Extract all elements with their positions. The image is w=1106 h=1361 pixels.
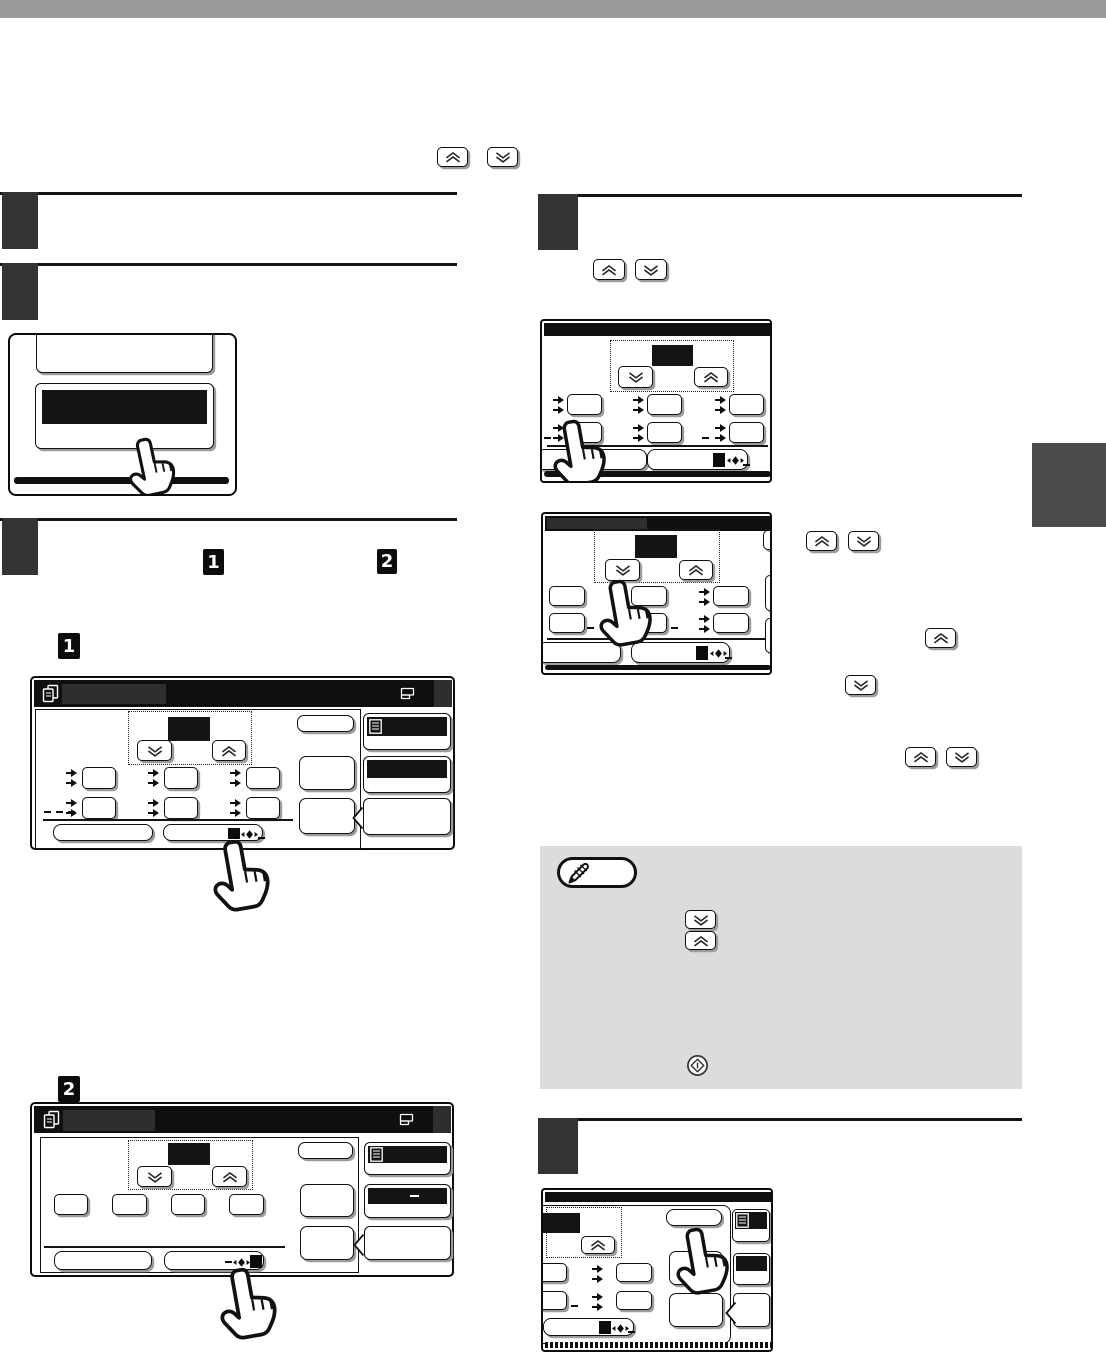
step2-box (2, 263, 38, 320)
hand-cursor (202, 832, 284, 918)
copy-screen-icon (42, 684, 59, 703)
preset-ratio-key (164, 797, 198, 819)
start-key-icon (686, 1054, 709, 1077)
job-list-icon (370, 1147, 383, 1162)
pencil-icon (565, 861, 591, 887)
xy-zoom-key (647, 449, 748, 470)
note-pill (557, 857, 637, 888)
preset-ratio-key (54, 1194, 88, 1215)
right-column-key (363, 798, 451, 835)
zoom-down-key-inline (685, 910, 716, 929)
job-status-key (363, 713, 451, 750)
hand-cursor (541, 413, 620, 483)
touchscreen-illustration-4 (541, 512, 772, 675)
touchscreen-illustration-2 (30, 1102, 454, 1277)
zoom-up-key-inline (437, 147, 468, 167)
selected-key-highlight (42, 390, 207, 424)
ratio-value-display (168, 717, 210, 741)
step2-rule (0, 263, 457, 266)
ratio-value-display (541, 1213, 580, 1233)
right-column-key (363, 756, 451, 793)
preset-ratio-key (171, 1194, 205, 1215)
cropped-right-key (765, 575, 772, 611)
preset-ratio-key (713, 586, 749, 606)
zoom-down-key-inline (635, 259, 667, 280)
inline-marker-1: 1 (203, 549, 224, 575)
grid-separator (44, 1246, 285, 1248)
callout-notch (725, 1302, 736, 1324)
right-small-key (297, 715, 354, 732)
right-column-key (364, 1184, 451, 1218)
zoom-up-key (212, 740, 246, 761)
panel-edge-bar (545, 665, 771, 670)
ratio-value-display (168, 1143, 210, 1165)
zoom-down-key (137, 1166, 172, 1187)
zoom-up-key (694, 367, 728, 387)
touchscreen-illustration-5 (541, 1188, 773, 1352)
right-mid-key (300, 1184, 354, 1217)
screen-title-placeholder (62, 684, 166, 704)
note-box (540, 846, 1022, 1089)
zoom-down-key-inline (487, 147, 518, 167)
step3-box (2, 518, 38, 575)
copy-screen-icon (43, 1110, 60, 1129)
callout-notch (352, 807, 363, 829)
preset-ratio-key (713, 613, 749, 633)
preset-ratio-key (549, 613, 585, 633)
zoom-up-key-inline (593, 259, 625, 280)
manual-page: 1 2 1 (0, 0, 1106, 1361)
right-mid-key (299, 756, 355, 790)
ratio-value-display (635, 535, 677, 558)
right-small-key (298, 1142, 353, 1159)
zoom-up-key-inline (905, 747, 936, 767)
touchscreen-illustration-1 (30, 676, 455, 850)
right-low-key (300, 1226, 354, 1260)
preset-ratio-key (729, 422, 764, 443)
bottom-left-key (53, 824, 153, 841)
zoom-up-key (212, 1166, 247, 1187)
preset-ratio-key (567, 394, 602, 415)
screen-title-bar (544, 323, 771, 336)
title-bar-end-tile (434, 680, 452, 707)
right-column-key (364, 1226, 451, 1260)
step1-box (2, 192, 38, 249)
cropped-right-key (763, 530, 772, 550)
step5-box (538, 1118, 578, 1174)
zoom-up-key (679, 560, 713, 580)
preset-ratio-key (541, 1291, 567, 1310)
panel-illustration-mode-select (8, 333, 237, 496)
zoom-down-key (618, 366, 653, 388)
zoom-down-key-inline (845, 675, 876, 695)
zoom-up-key-inline (806, 531, 837, 551)
top-gray-bar (0, 0, 1106, 18)
zoom-down-key-inline (946, 747, 977, 767)
screen-title-placeholder (63, 1110, 155, 1131)
preset-ratio-key (229, 1194, 264, 1215)
screen-key (36, 333, 213, 373)
panel-edge-dotted-bar (545, 1342, 771, 1348)
step3-rule (0, 518, 457, 521)
cropped-right-key (765, 618, 772, 653)
hand-cursor (587, 573, 666, 654)
xy-adjust-icon (612, 1323, 629, 1334)
job-status-key (364, 1142, 451, 1175)
zoom-down-key (137, 740, 172, 761)
inline-marker-2: 2 (377, 549, 397, 574)
zoom-up-key-inline (685, 931, 716, 950)
preset-ratio-key (246, 767, 280, 789)
hand-cursor (116, 430, 190, 496)
step4-rule (538, 194, 1022, 197)
preset-ratio-key (549, 586, 585, 606)
preset-ratio-key (647, 394, 682, 415)
job-list-icon (736, 1213, 749, 1228)
preset-ratio-key (647, 422, 682, 443)
preset-ratio-key (82, 797, 116, 819)
section-marker-2: 2 (58, 1076, 80, 1102)
ratio-value-display (652, 345, 693, 366)
bottom-left-key (54, 1251, 152, 1270)
step5-rule (538, 1118, 1022, 1121)
preset-ratio-key (616, 1263, 652, 1282)
output-tray-icon (399, 1113, 414, 1126)
preset-ratio-key (616, 1291, 652, 1310)
step4-box (538, 194, 578, 250)
title-bar-end-tile (433, 1106, 451, 1133)
right-low-key (299, 798, 355, 834)
step1-rule (0, 192, 457, 195)
preset-ratio-key (112, 1194, 147, 1215)
xy-zoom-key (543, 1318, 634, 1336)
xy-adjust-icon (727, 455, 744, 466)
screen-title-bar (34, 1106, 449, 1133)
hand-cursor (209, 1260, 291, 1346)
panel-edge-bar (14, 477, 229, 484)
grid-separator (43, 819, 293, 821)
hand-cursor (664, 1221, 743, 1302)
preset-ratio-key (82, 767, 116, 789)
job-list-icon (369, 719, 382, 734)
zoom-up-key-inline (925, 628, 956, 648)
screen-key-selected (35, 383, 214, 449)
zoom-down-key-inline (848, 531, 879, 551)
zoom-up-key (581, 1236, 615, 1254)
preset-ratio-key (246, 797, 280, 819)
job-status-key (732, 1209, 770, 1242)
screen-title-bar (545, 1192, 772, 1202)
screen-title-bar (34, 680, 450, 707)
callout-notch (353, 1234, 364, 1256)
right-column-key (733, 1293, 770, 1327)
preset-ratio-key (541, 1263, 567, 1282)
preset-ratio-key (729, 394, 764, 415)
section-marker-1: 1 (58, 633, 80, 659)
touchscreen-illustration-3 (540, 319, 772, 483)
output-tray-icon (400, 687, 415, 700)
chapter-side-tab (1032, 443, 1106, 527)
preset-ratio-key (164, 767, 198, 789)
